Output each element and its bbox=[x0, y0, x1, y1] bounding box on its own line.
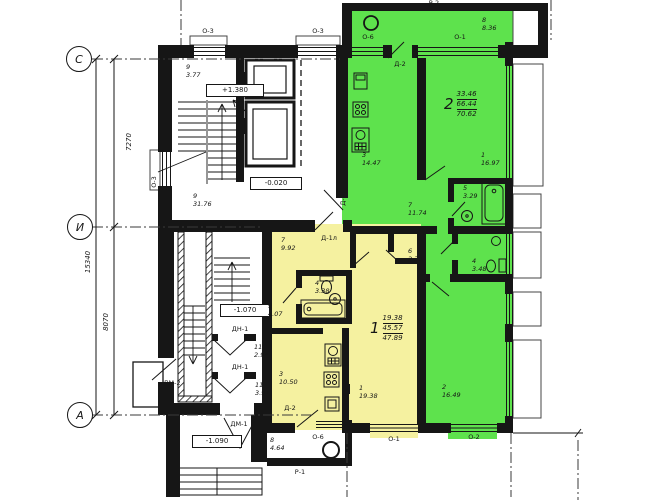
window-label-o1: О-1 bbox=[388, 436, 400, 443]
door-label-d2: Д-2 bbox=[394, 61, 406, 68]
level-mark: -1.090 bbox=[192, 435, 242, 448]
room-label: 711.74 bbox=[408, 202, 427, 218]
room-label: 931.76 bbox=[193, 193, 212, 209]
rail-label-p1: Р-1 bbox=[295, 469, 305, 476]
door-label-d1: Д-1 bbox=[340, 194, 347, 206]
room-label: 43.38 bbox=[315, 280, 329, 296]
room-label: 216.49 bbox=[442, 384, 461, 400]
room-label: 119.38 bbox=[359, 385, 378, 401]
dim-span-bottom: 8070 bbox=[102, 313, 110, 331]
dim-span-top: 7270 bbox=[125, 133, 133, 151]
room-label: 113.91 bbox=[255, 382, 269, 398]
level-mark: -0.020 bbox=[250, 177, 302, 190]
axis-bubble-i: И bbox=[67, 214, 93, 240]
window-label-o1: О-1 bbox=[454, 34, 466, 41]
window-label-o6: О-6 bbox=[312, 434, 324, 441]
room-label: 94.07 bbox=[268, 303, 282, 319]
room-label: 79.92 bbox=[281, 237, 295, 253]
shaft-hatched-walls bbox=[178, 232, 212, 402]
axis-bubble-a: А bbox=[67, 402, 93, 428]
room-label: 62.39 bbox=[408, 248, 422, 264]
door-label-d1l: Д-1л bbox=[321, 235, 337, 242]
dim-total: 15340 bbox=[84, 251, 92, 273]
door-label-dn1: ДН-1 bbox=[232, 326, 248, 333]
apartment-1-summary: 1 19.38 45.57 47.89 bbox=[370, 314, 403, 342]
door-label-dm1: ДМ-1 bbox=[230, 421, 247, 428]
apartment-2-summary: 2 33.46 66.44 70.62 bbox=[444, 90, 477, 118]
room-label: 43.48 bbox=[472, 258, 486, 274]
room-label: 314.47 bbox=[362, 152, 381, 168]
elevator-icon bbox=[246, 60, 301, 166]
plan-linework bbox=[0, 0, 650, 500]
door-label-dn1: ДН-1 bbox=[232, 364, 248, 371]
window-label-o3: О-3 bbox=[202, 28, 214, 35]
room-label: 84.64 bbox=[270, 437, 284, 453]
window-label-o6: О-6 bbox=[362, 34, 374, 41]
rail-label-p2: Р-2 bbox=[429, 0, 439, 7]
window-label-o3: О-3 bbox=[312, 28, 324, 35]
door-label-d2: Д-2 bbox=[284, 405, 296, 412]
floor-plan: С И А 15340 7270 8070 +1.380 -0.020 -1.0… bbox=[0, 0, 650, 500]
entrance-steps bbox=[172, 468, 262, 495]
window-label-o3: О-3 bbox=[151, 176, 158, 188]
door-label-dm2: ДМ-2 bbox=[163, 380, 180, 387]
room-label: 310.50 bbox=[279, 371, 298, 387]
axis-bubble-c: С bbox=[66, 46, 92, 72]
room-label: 116.97 bbox=[481, 152, 500, 168]
level-mark: -1.070 bbox=[220, 304, 270, 317]
room-label: 88.36 bbox=[482, 17, 496, 33]
room-label: 93.77 bbox=[186, 64, 200, 80]
room-label: 112.94 bbox=[254, 344, 268, 360]
room-label: 53.29 bbox=[463, 185, 477, 201]
window-label-o2: О-2 bbox=[468, 434, 480, 441]
level-mark: +1.380 bbox=[206, 84, 264, 97]
